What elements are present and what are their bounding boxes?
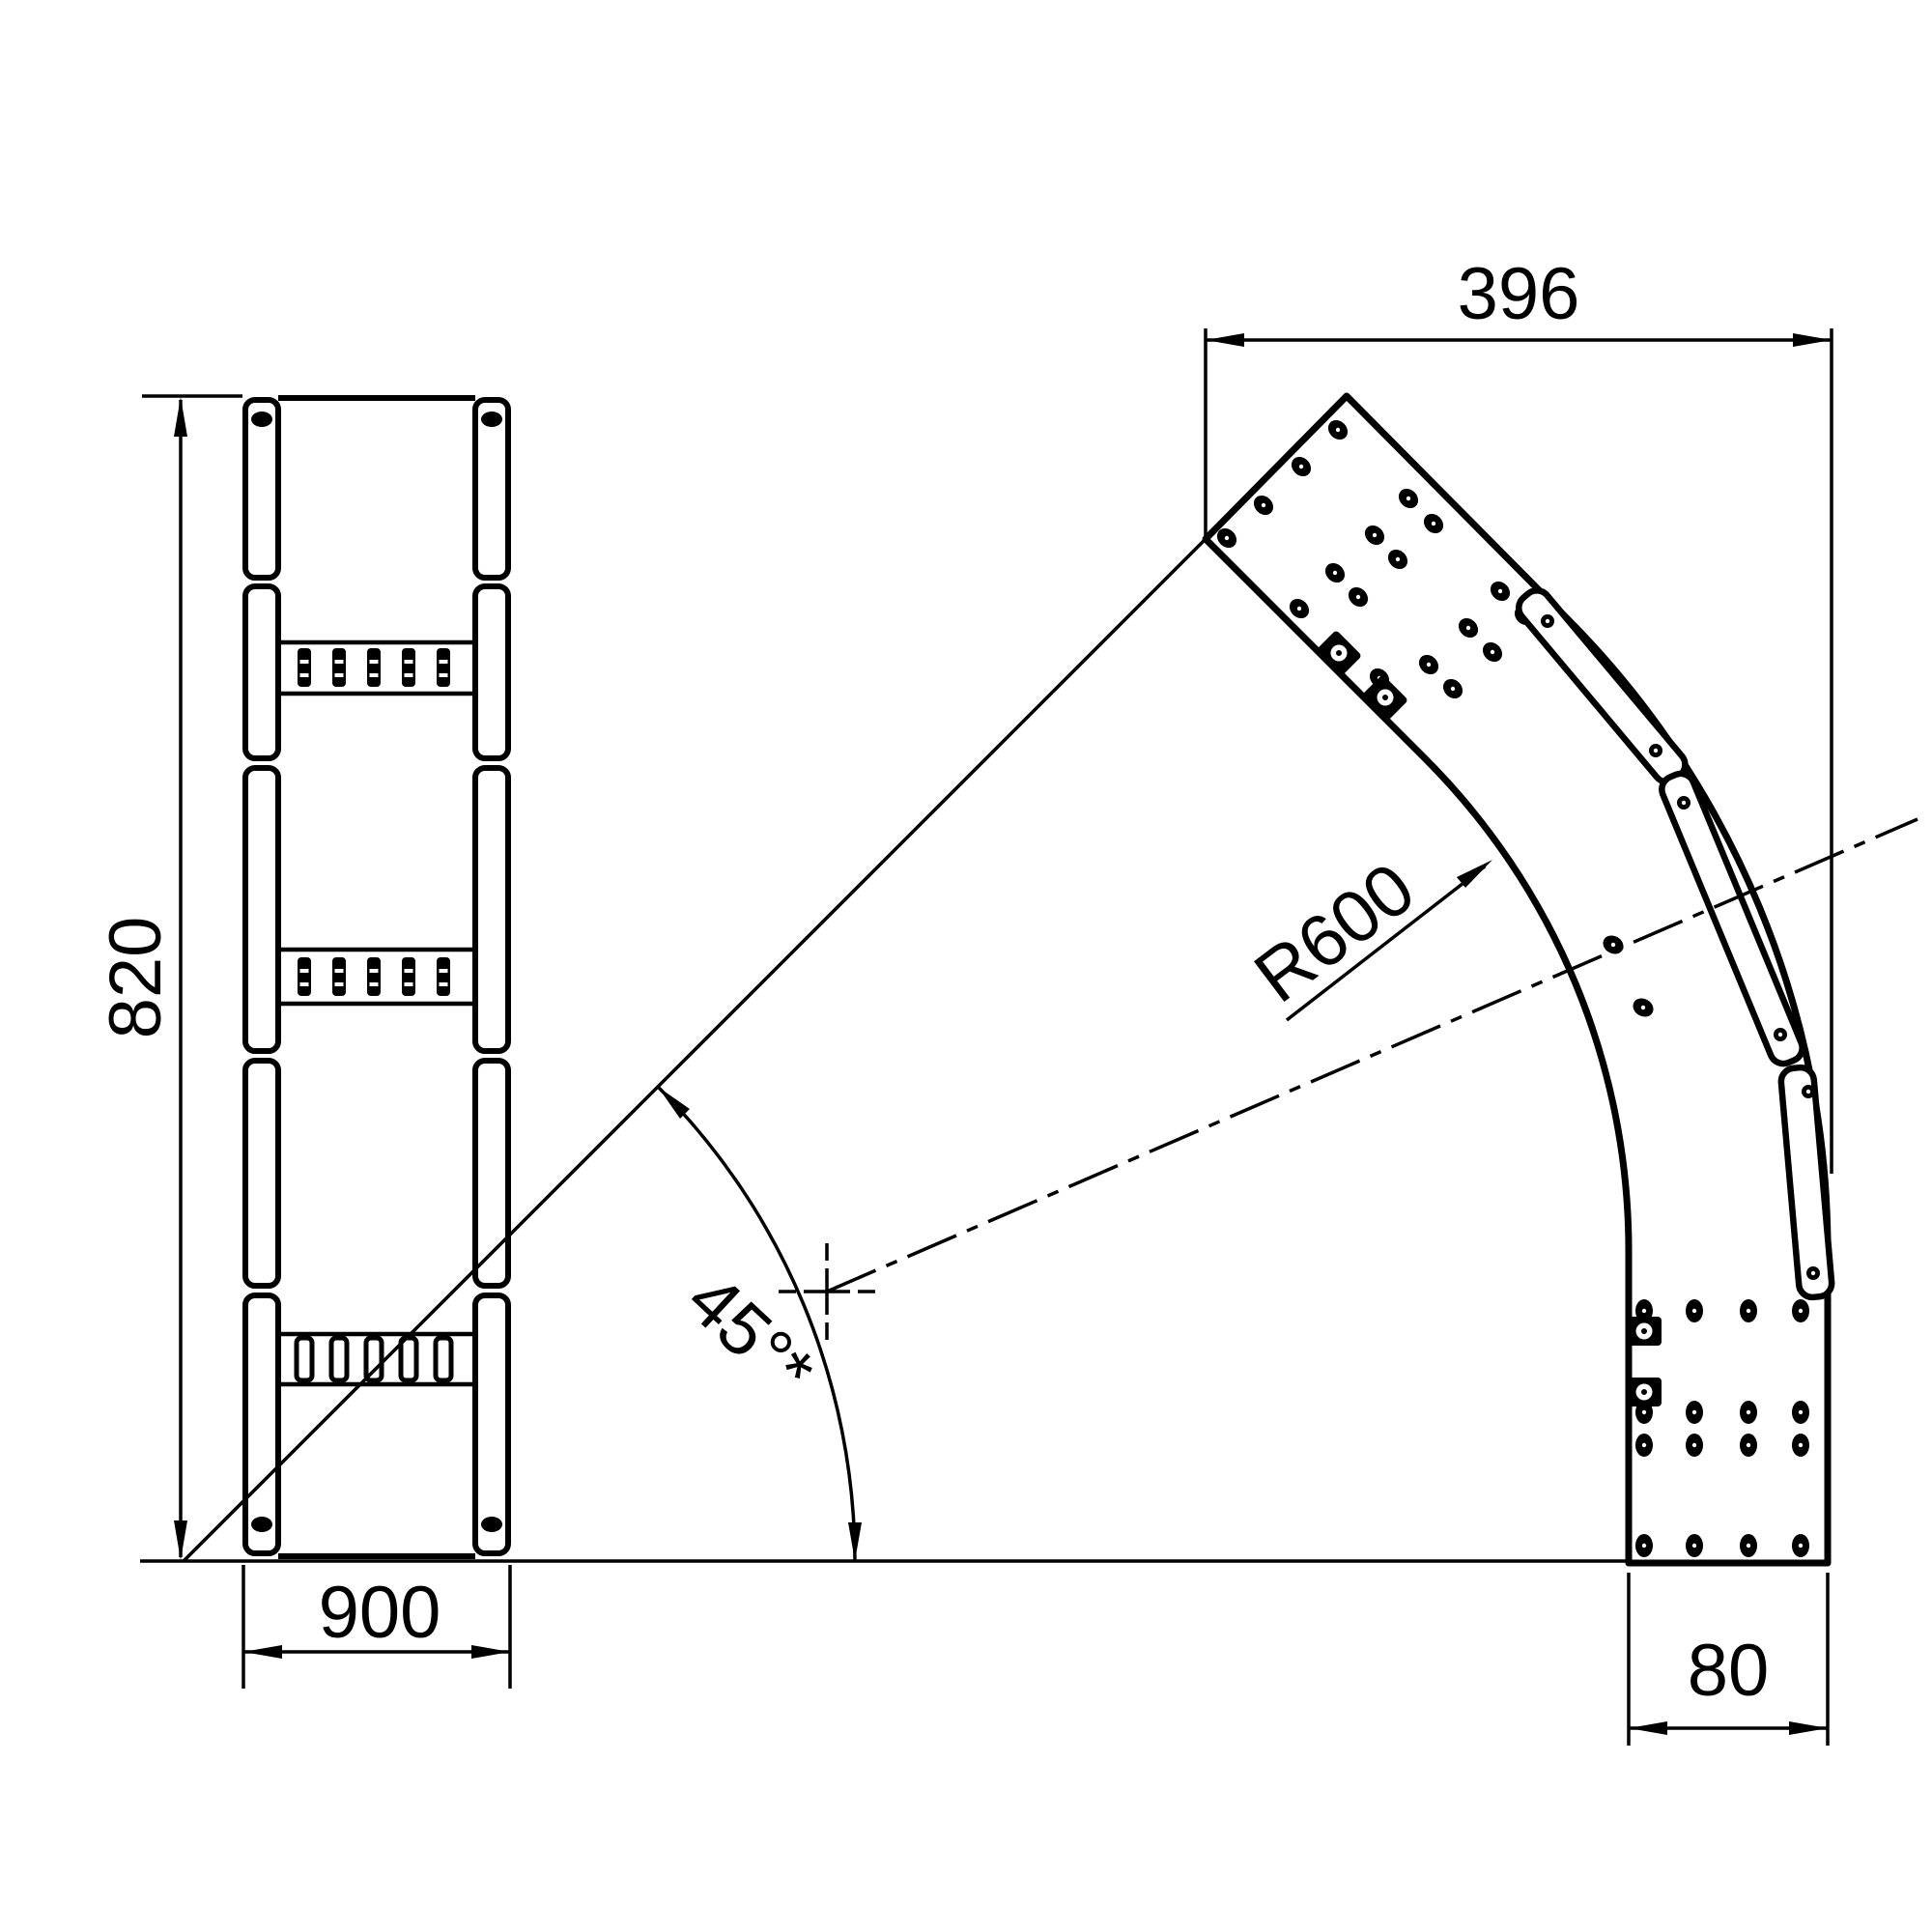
arrowhead-down <box>174 1520 187 1560</box>
left-rail <box>245 400 278 1553</box>
angle-45-label: 45°* <box>671 1259 830 1414</box>
dimension-r600: R600 <box>1240 847 1492 1020</box>
rung-slots-3 <box>297 1338 451 1380</box>
dim-900-label: 900 <box>319 1572 441 1654</box>
rung-band-1 <box>281 642 472 694</box>
left-view <box>245 398 508 1556</box>
angle-arrowhead-bottom <box>848 1522 862 1561</box>
arrowhead-left <box>1206 333 1244 347</box>
rung-slots-1 <box>298 648 450 687</box>
arrowhead-right <box>1793 333 1832 347</box>
arrowhead-left <box>1629 1721 1667 1735</box>
dim-80-label: 80 <box>1688 1630 1770 1712</box>
rung-band-3 <box>281 1334 472 1384</box>
rung-slots-2 <box>298 957 450 996</box>
radius-r600-label: R600 <box>1240 847 1430 1018</box>
dimension-820: 820 <box>95 396 242 1560</box>
cad-drawing-canvas: 820 900 45°* <box>0 0 1932 1932</box>
radius-arrowhead <box>1457 860 1492 888</box>
arrowhead-right <box>471 1645 510 1659</box>
dim-396-label: 396 <box>1458 253 1580 335</box>
dimension-80: 80 <box>1629 1573 1828 1746</box>
rung-band-2 <box>281 950 472 1004</box>
right-view: 45°* <box>140 253 1918 1746</box>
dimension-900: 900 <box>243 1565 510 1689</box>
dim-820-label: 820 <box>95 917 177 1039</box>
arrowhead-up <box>174 397 187 437</box>
drawing-page: 820 900 45°* <box>0 0 1932 1932</box>
arrowhead-left <box>243 1645 282 1659</box>
right-rail <box>475 400 508 1553</box>
arrowhead-right <box>1789 1721 1828 1735</box>
